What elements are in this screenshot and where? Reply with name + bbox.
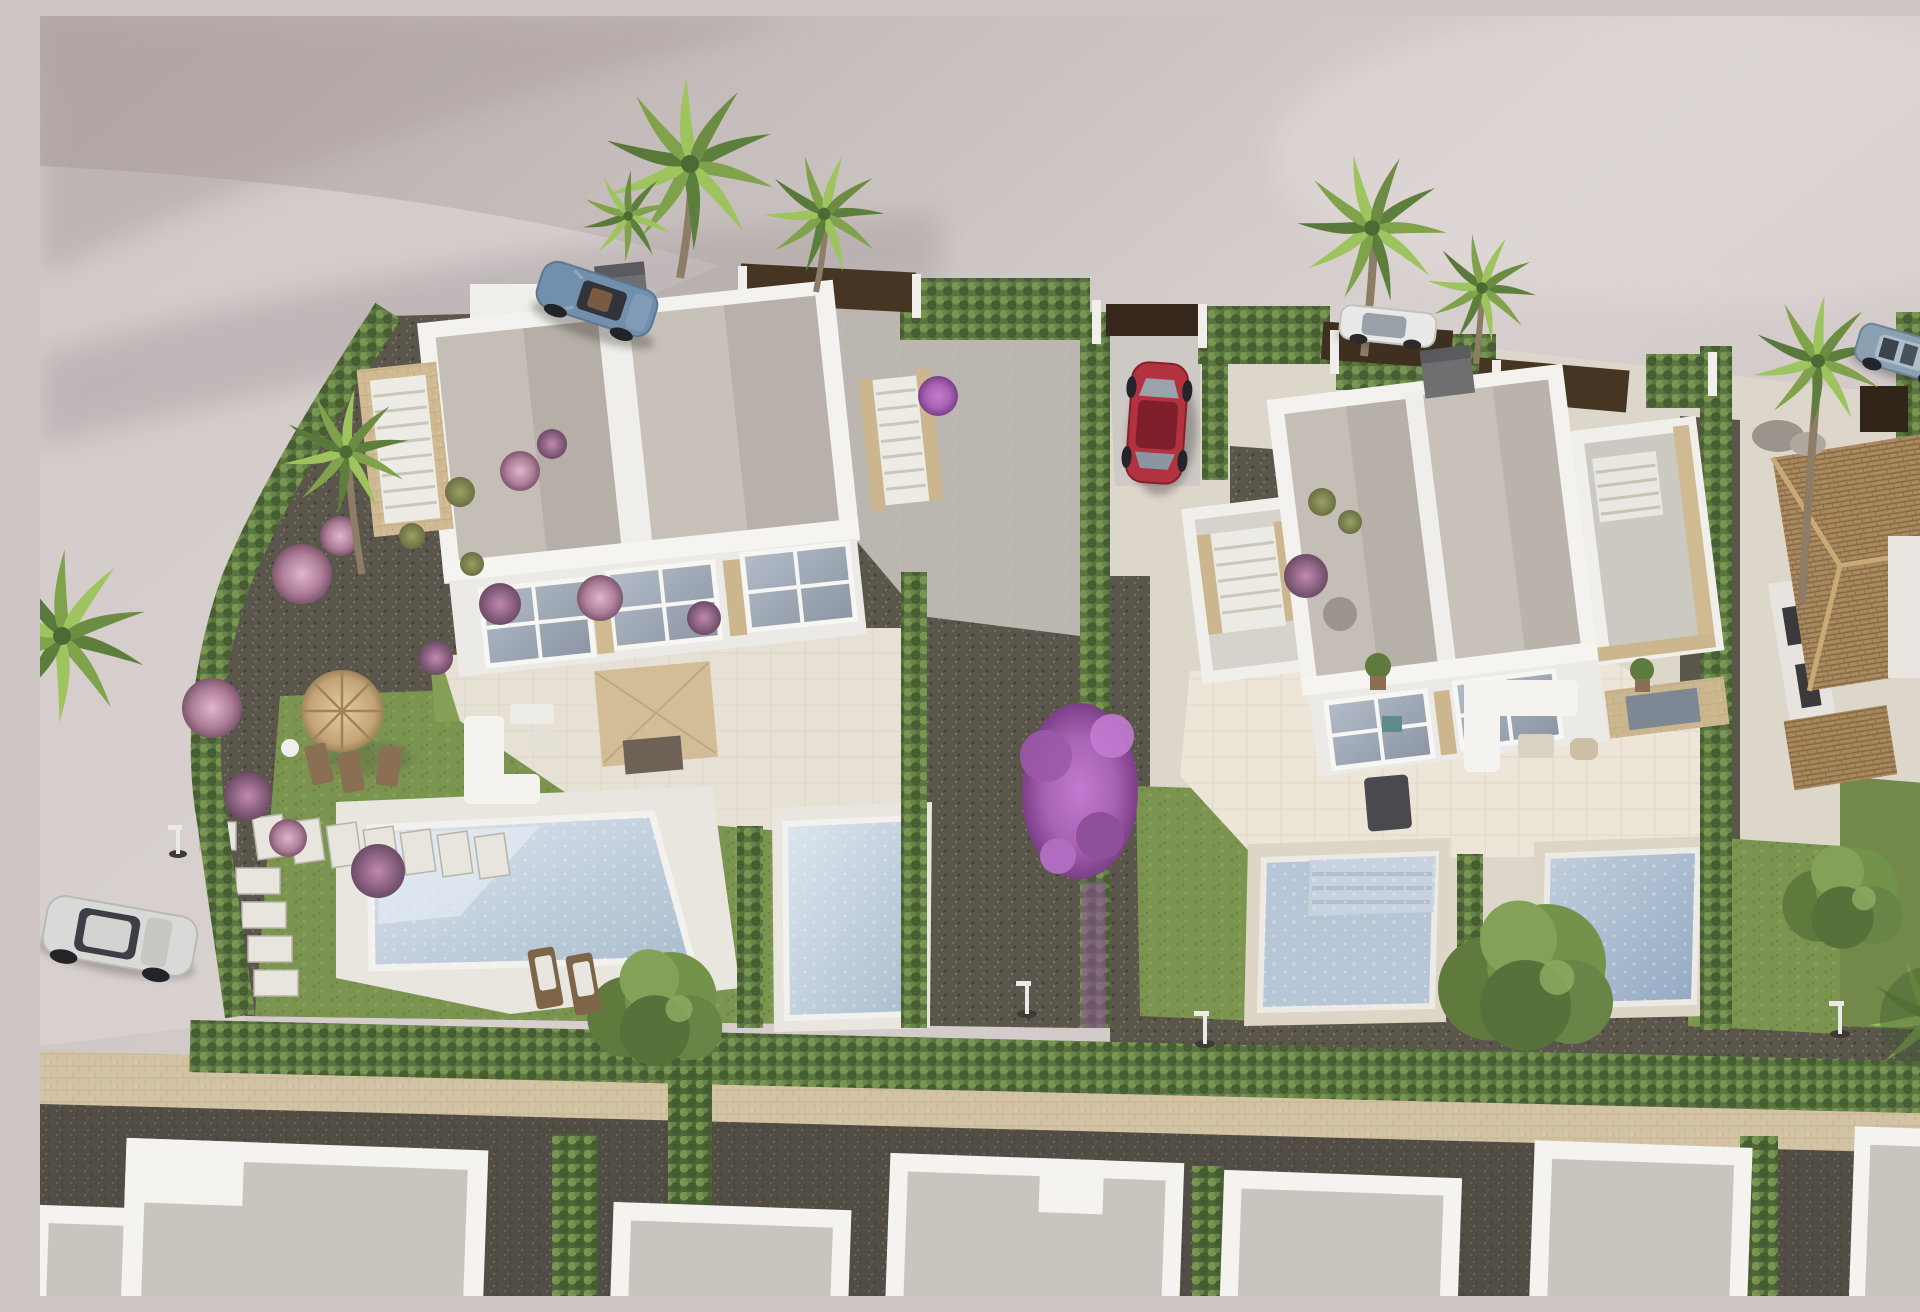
left-second-pool-ripple [785,818,918,1018]
barbecue [1364,774,1413,832]
render-canvas [40,16,1920,1296]
left-terrace-parasol-dining [594,661,718,774]
right-step-pool-ripple [1260,854,1436,1010]
villa-development-render [40,16,1920,1296]
bougainvillea-hedge-spill [1082,882,1106,1028]
centre-drive-gate [1106,304,1200,336]
right-drive-gate [1860,386,1908,432]
teal-planter [1382,716,1402,732]
right-neighbour-roof [1888,536,1920,678]
